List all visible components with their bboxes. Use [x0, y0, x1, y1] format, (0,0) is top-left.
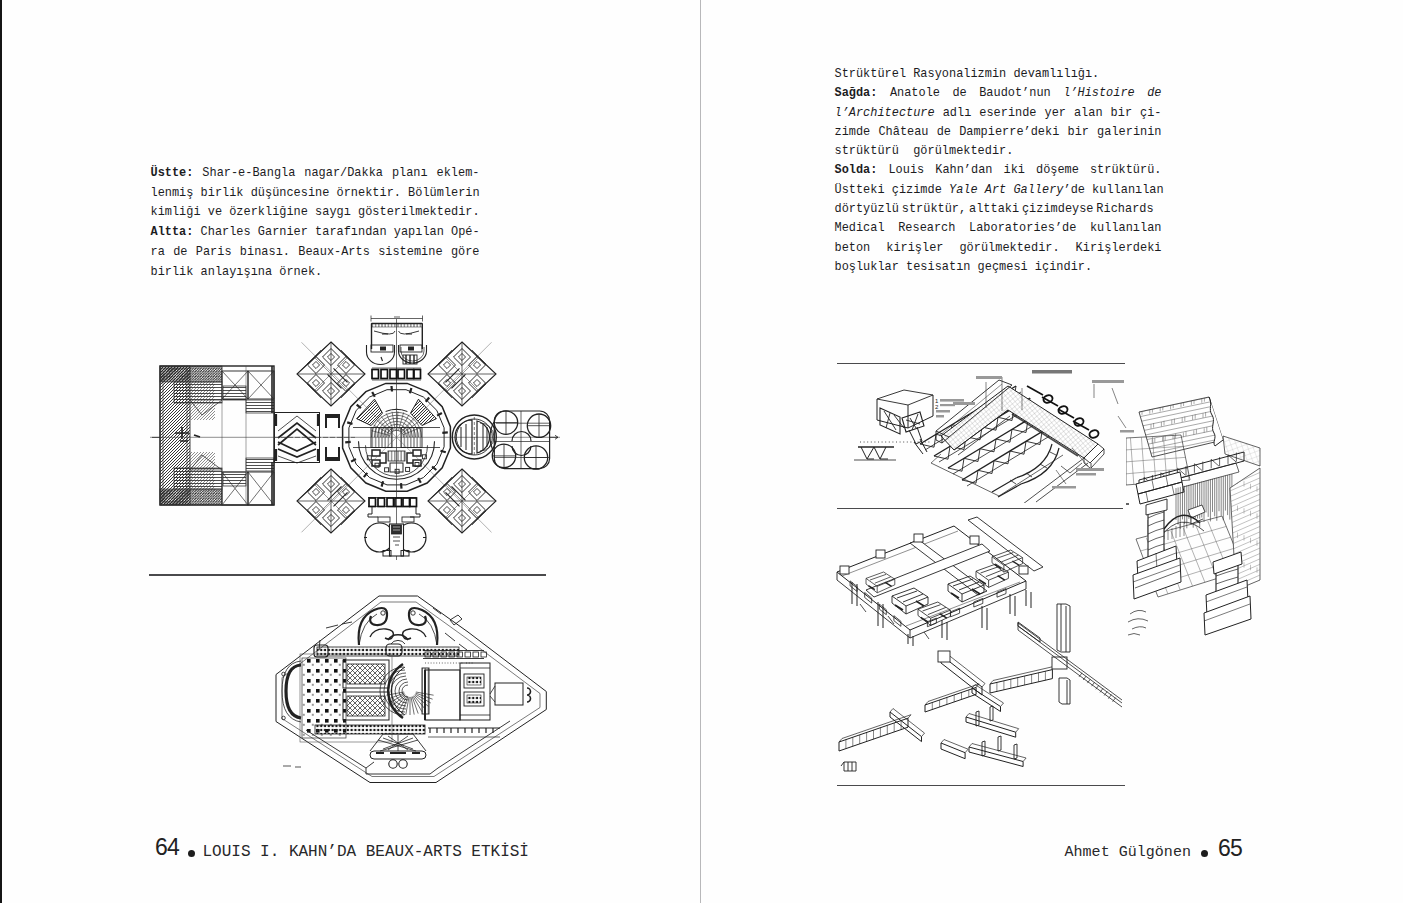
svg-text:2: 2	[935, 404, 939, 410]
